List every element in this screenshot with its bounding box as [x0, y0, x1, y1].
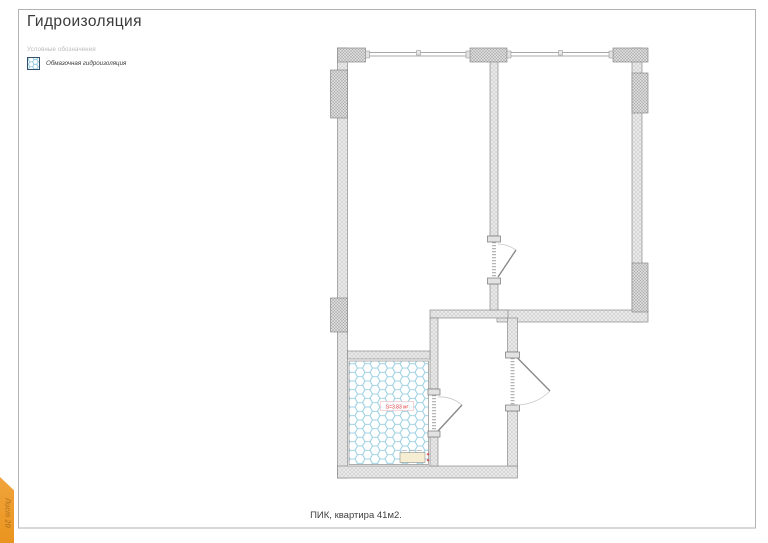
wall-piers: [331, 48, 649, 332]
page-title: Гидроизоляция: [27, 13, 142, 31]
hallway-right-wall-lower: [508, 411, 518, 466]
plan-caption: ПИК, квартира 41м2.: [256, 510, 456, 521]
bathroom-tile-area: [349, 361, 429, 465]
bathroom-right-wall-upper: [430, 318, 438, 389]
bathroom-top-wall: [348, 351, 431, 359]
window-2: [507, 51, 613, 59]
bathroom-door: [428, 389, 462, 437]
legend-section-label: Условные обозначения: [27, 47, 96, 53]
floor-plan: S=3.83 м²: [0, 0, 768, 543]
sheet: S=3.83 м² Гидроизоляция Условные обознач…: [0, 0, 768, 543]
interior-door: [488, 236, 517, 284]
legend-item-label: Обмазочная гидроизоляция: [46, 60, 126, 67]
bathroom-right-wall-lower: [430, 437, 438, 466]
central-wall-upper: [490, 60, 498, 236]
hallway-right-wall-upper: [508, 318, 518, 352]
right-room-bottom-wall: [497, 310, 648, 322]
central-wall-lower: [490, 284, 498, 310]
bottom-wall: [338, 466, 518, 478]
window-1: [366, 51, 471, 59]
waterproofing-swatch-icon: [27, 57, 40, 70]
area-value: S=3.83 м²: [386, 404, 409, 410]
entry-door: [506, 352, 551, 411]
hallway-top-wall: [430, 310, 508, 318]
bathroom-area-label: S=3.83 м²: [381, 402, 414, 411]
bathroom-fixture: [400, 451, 429, 463]
sheet-tab-label: Лист 20: [4, 498, 11, 528]
